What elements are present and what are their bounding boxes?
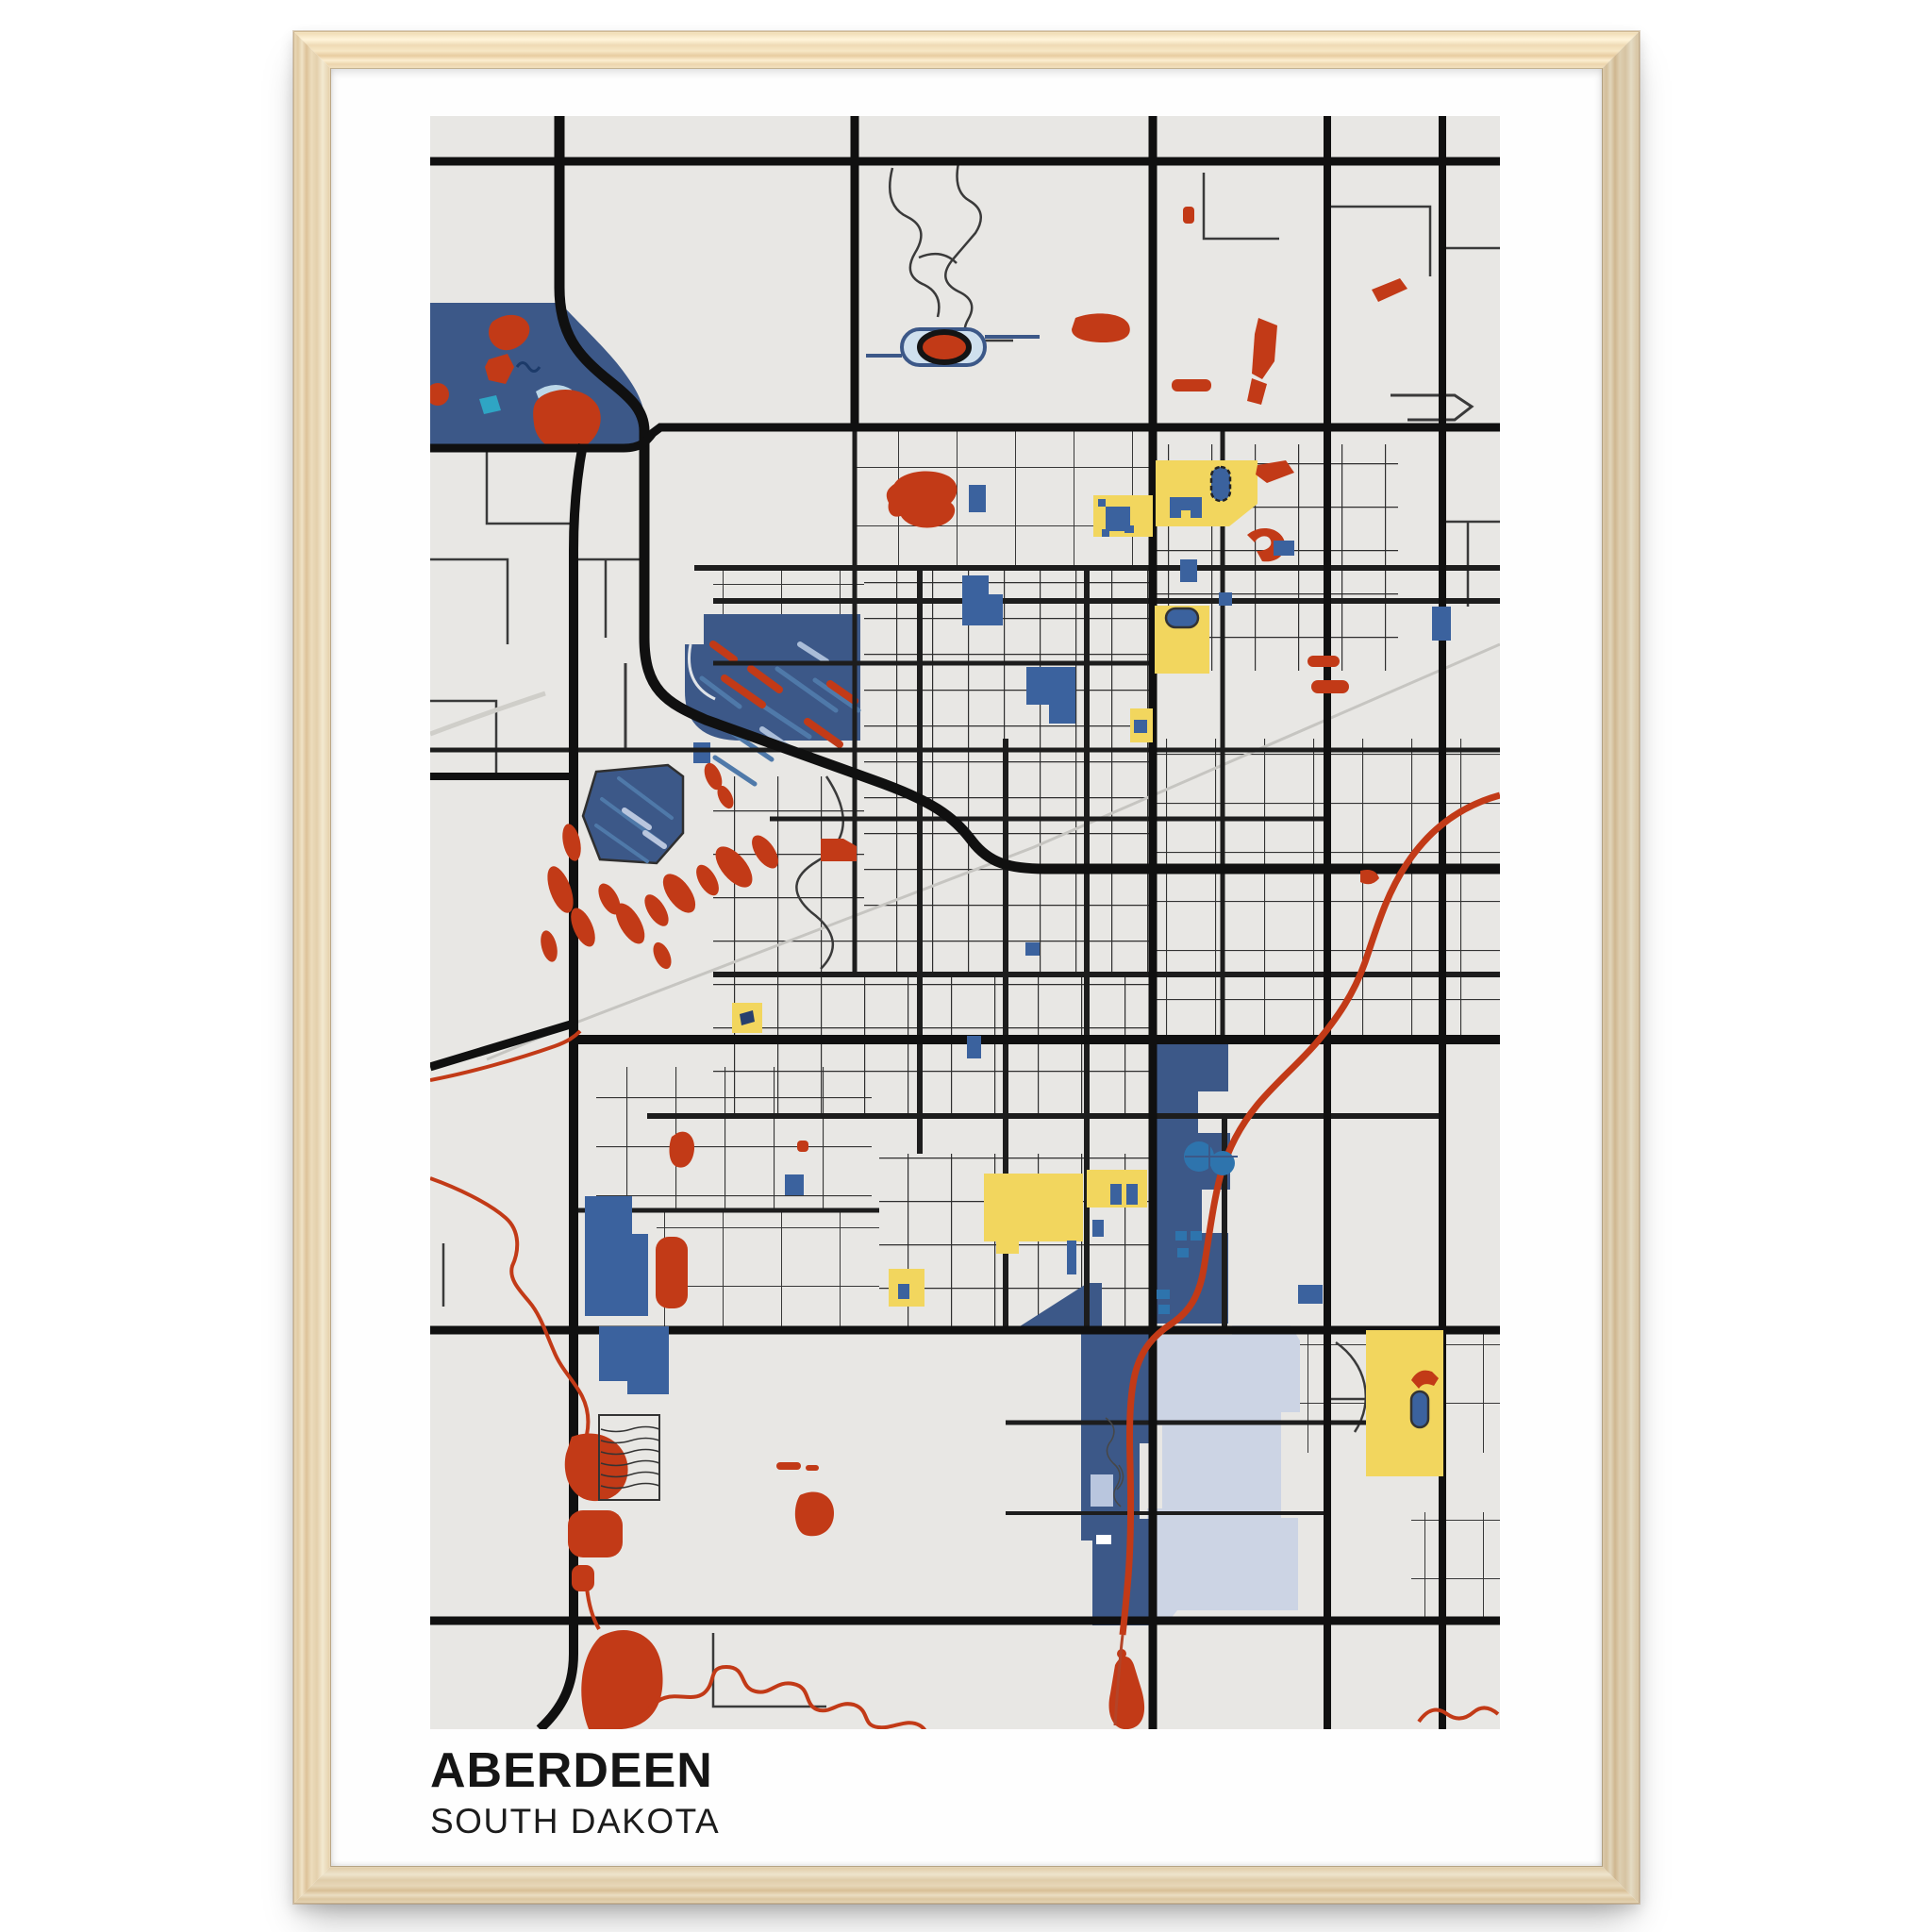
wood-frame-right (1602, 31, 1640, 1904)
wood-frame: ABERDEEN SOUTH DAKOTA (293, 31, 1640, 1904)
city-map (430, 116, 1500, 1729)
map-shapes-layer (430, 116, 1500, 1729)
wood-frame-bottom (293, 1866, 1640, 1904)
poster-mockup: ABERDEEN SOUTH DAKOTA (0, 0, 1932, 1932)
wood-frame-top (293, 31, 1640, 69)
poster-caption: ABERDEEN SOUTH DAKOTA (430, 1746, 720, 1841)
state-name-subtitle: SOUTH DAKOTA (430, 1802, 720, 1841)
city-name-title: ABERDEEN (430, 1746, 720, 1796)
matte-board: ABERDEEN SOUTH DAKOTA (331, 69, 1602, 1866)
wood-frame-left (293, 31, 331, 1904)
city-map-svg (430, 116, 1500, 1729)
